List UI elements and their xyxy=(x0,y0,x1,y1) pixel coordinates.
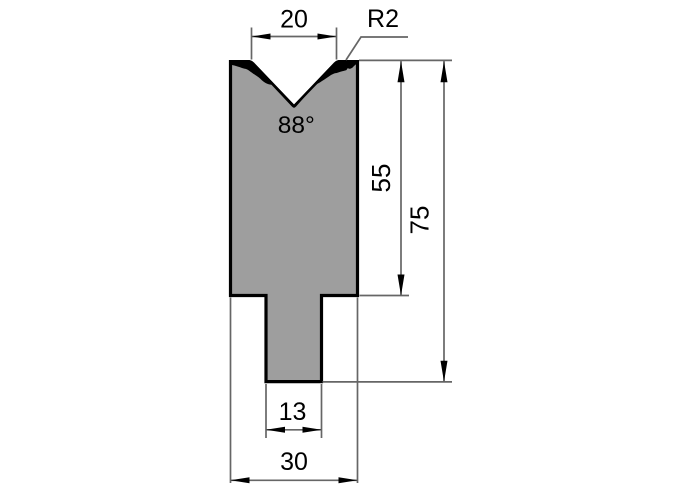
svg-text:30: 30 xyxy=(280,448,308,476)
svg-text:20: 20 xyxy=(280,6,308,34)
svg-text:R2: R2 xyxy=(367,5,399,33)
svg-text:88°: 88° xyxy=(278,112,315,139)
svg-text:55: 55 xyxy=(366,164,396,193)
svg-text:75: 75 xyxy=(405,206,435,235)
svg-text:13: 13 xyxy=(279,398,307,426)
